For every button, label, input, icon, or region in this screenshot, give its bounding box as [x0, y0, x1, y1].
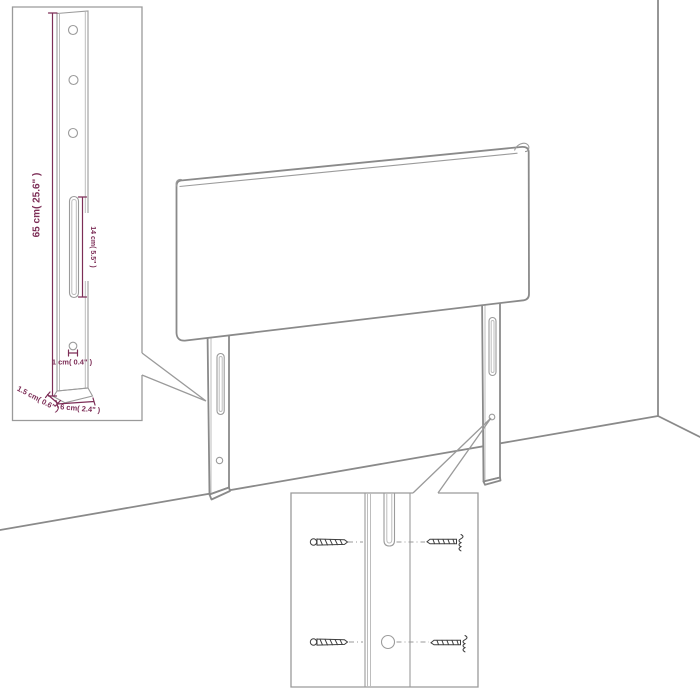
left-leg — [208, 327, 231, 500]
right-leg — [482, 289, 501, 485]
floor-wall-right-line — [658, 416, 700, 437]
hole-diameter-label: 1 cm( 0.4" ) — [52, 358, 93, 367]
screw-head — [310, 539, 316, 545]
panel-outline — [177, 147, 530, 341]
headboard-panel — [176, 143, 529, 340]
diagram-canvas: 65 cm( 25.6" ) 14 cm( 5.5" ) 1 cm( 0.4" … — [0, 0, 700, 700]
hardware-detail-inset — [291, 418, 491, 687]
leg-height-label: 65 cm( 25.6" ) — [32, 173, 43, 238]
hardware-inset-leader-lines — [413, 418, 491, 493]
leg-inset-leader-lines — [142, 353, 206, 401]
headboard-diagram: 65 cm( 25.6" ) 14 cm( 5.5" ) 1 cm( 0.4" … — [0, 0, 700, 700]
screw-head — [310, 639, 316, 645]
slot-length-label: 14 cm( 5.5" ) — [89, 226, 96, 267]
